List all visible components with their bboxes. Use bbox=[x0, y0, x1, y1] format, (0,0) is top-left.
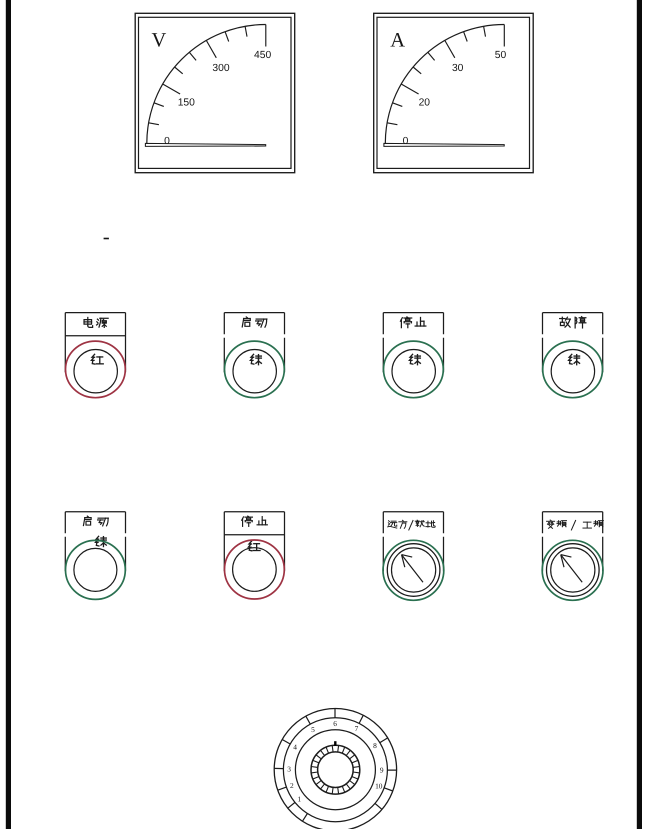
svg-text:A: A bbox=[390, 30, 405, 52]
svg-text:50: 50 bbox=[495, 50, 507, 61]
svg-text:6: 6 bbox=[333, 719, 337, 728]
svg-text:9: 9 bbox=[380, 766, 384, 775]
svg-text:30: 30 bbox=[452, 63, 464, 74]
svg-text:7: 7 bbox=[355, 724, 359, 733]
svg-text:V: V bbox=[152, 30, 167, 52]
svg-text:300: 300 bbox=[212, 63, 229, 74]
svg-text:150: 150 bbox=[178, 98, 195, 109]
svg-text:1: 1 bbox=[298, 794, 302, 803]
svg-text:10: 10 bbox=[375, 781, 383, 790]
svg-text:450: 450 bbox=[254, 50, 271, 61]
svg-text:8: 8 bbox=[373, 741, 377, 750]
svg-text:4: 4 bbox=[293, 742, 297, 751]
svg-text:5: 5 bbox=[311, 725, 315, 734]
svg-text:3: 3 bbox=[287, 764, 291, 773]
svg-text:20: 20 bbox=[419, 98, 431, 109]
svg-text:2: 2 bbox=[290, 781, 294, 790]
